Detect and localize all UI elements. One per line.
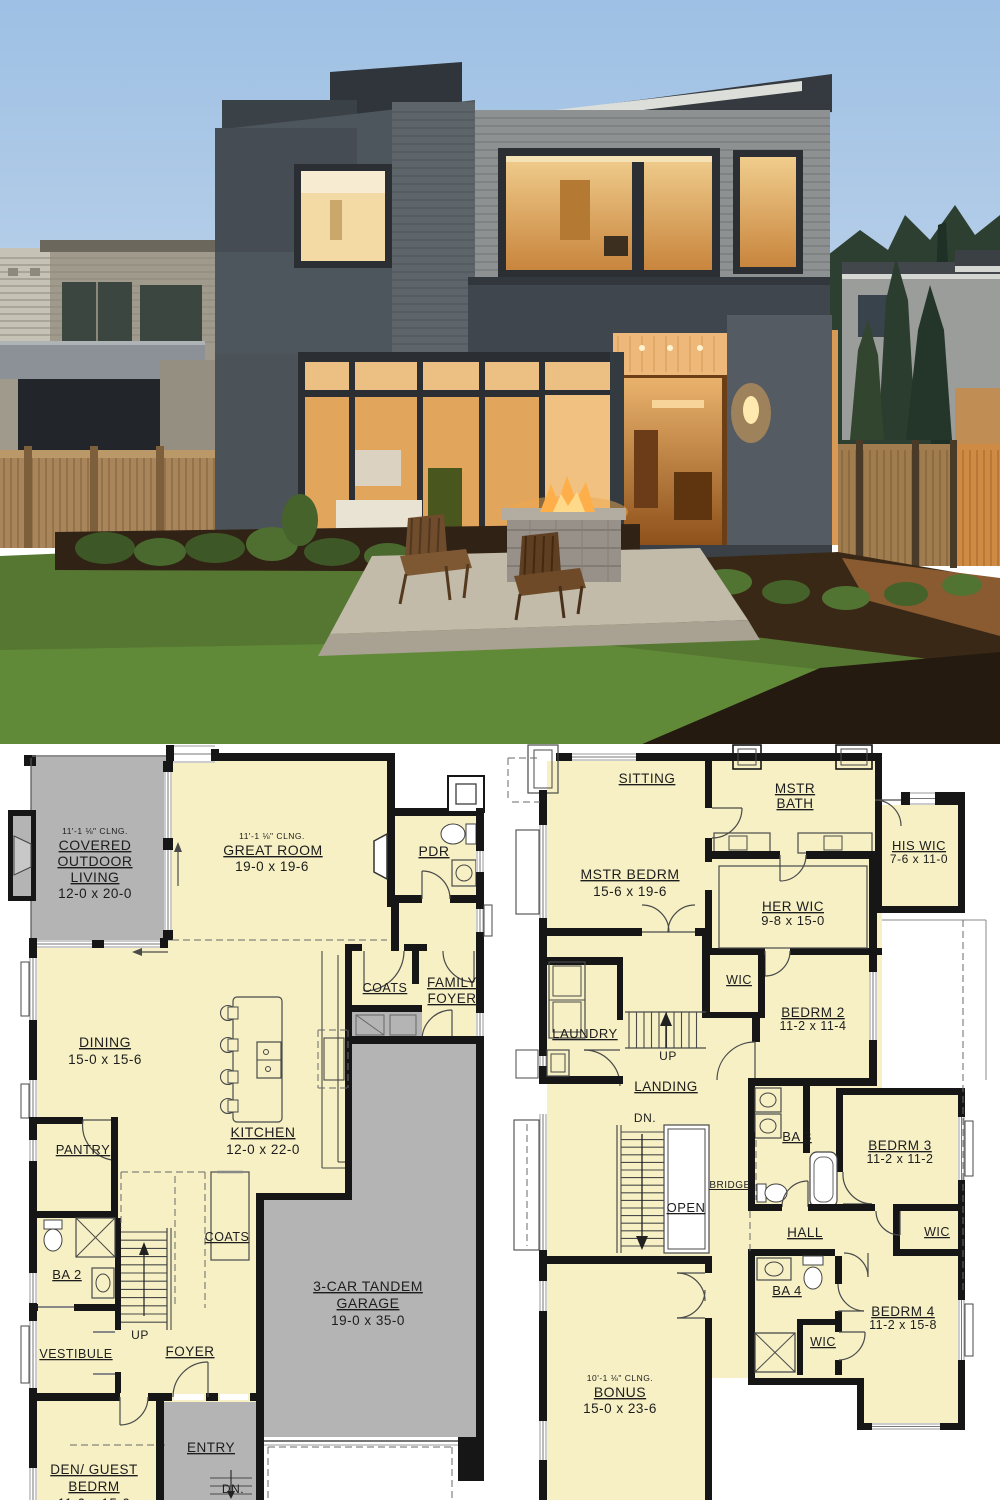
svg-text:11-2 x 15-8: 11-2 x 15-8 [869,1318,937,1332]
svg-text:BA 3: BA 3 [782,1129,811,1144]
svg-text:BA 2: BA 2 [52,1267,81,1282]
svg-text:9-8 x 15-0: 9-8 x 15-0 [761,913,825,928]
svg-text:15-0 x 15-6: 15-0 x 15-6 [68,1052,142,1067]
svg-text:COATS: COATS [205,1230,250,1244]
svg-text:OPEN: OPEN [667,1200,706,1215]
svg-text:7-6 x 11-0: 7-6 x 11-0 [890,852,948,866]
svg-text:PANTRY: PANTRY [56,1142,111,1157]
svg-text:PDR: PDR [418,843,449,859]
svg-text:COVERED: COVERED [59,837,132,853]
svg-text:BEDRM 4: BEDRM 4 [871,1304,935,1319]
svg-text:12-0 x 20-0: 12-0 x 20-0 [58,886,132,901]
svg-text:HIS WIC: HIS WIC [892,838,946,853]
svg-text:12-0 x 22-0: 12-0 x 22-0 [226,1142,300,1157]
svg-text:11'-1 ⅛" CLNG.: 11'-1 ⅛" CLNG. [62,826,128,836]
svg-text:DEN/ GUEST: DEN/ GUEST [50,1462,138,1477]
svg-text:11-2 x 11-2: 11-2 x 11-2 [867,1152,934,1166]
svg-text:MSTR: MSTR [775,781,815,796]
svg-text:MSTR BEDRM: MSTR BEDRM [580,866,679,882]
svg-text:15-6 x 19-6: 15-6 x 19-6 [593,884,667,899]
svg-text:COATS: COATS [363,981,408,995]
svg-text:GARAGE: GARAGE [337,1295,400,1311]
svg-text:3-CAR TANDEM: 3-CAR TANDEM [313,1278,423,1294]
svg-text:BEDRM: BEDRM [68,1479,119,1494]
svg-text:OUTDOOR: OUTDOOR [57,853,132,869]
svg-text:UP: UP [131,1328,149,1342]
svg-text:WIC: WIC [726,973,752,987]
svg-text:DN.: DN. [222,1482,244,1496]
svg-text:WIC: WIC [924,1225,950,1239]
svg-text:FOYER: FOYER [427,991,476,1006]
svg-text:19-0 x 19-6: 19-0 x 19-6 [235,859,309,874]
svg-text:KITCHEN: KITCHEN [231,1124,296,1140]
svg-text:LANDING: LANDING [634,1079,698,1094]
svg-text:10'-1 ⅛" CLNG.: 10'-1 ⅛" CLNG. [587,1373,653,1383]
svg-text:BEDRM 2: BEDRM 2 [781,1005,845,1020]
svg-text:WIC: WIC [810,1335,836,1349]
svg-text:BONUS: BONUS [594,1384,646,1400]
svg-text:HALL: HALL [787,1225,823,1240]
svg-text:VESTIBULE: VESTIBULE [39,1347,112,1361]
svg-text:BRIDGE: BRIDGE [709,1180,750,1191]
svg-text:FOYER: FOYER [165,1344,214,1359]
svg-text:DN.: DN. [634,1111,656,1125]
svg-text:11'-1 ⅛" CLNG.: 11'-1 ⅛" CLNG. [239,831,305,841]
svg-text:DINING: DINING [79,1034,131,1050]
svg-text:BA 4: BA 4 [772,1283,801,1298]
svg-text:19-0 x 35-0: 19-0 x 35-0 [331,1313,405,1328]
svg-text:11-2 x 11-4: 11-2 x 11-4 [780,1019,847,1033]
svg-text:11-0 x 15-0: 11-0 x 15-0 [58,1496,131,1500]
svg-text:LIVING: LIVING [71,869,120,885]
svg-text:FAMILY: FAMILY [427,975,477,990]
svg-text:HER WIC: HER WIC [762,899,824,914]
svg-text:ENTRY: ENTRY [187,1440,235,1455]
svg-text:UP: UP [659,1049,677,1063]
svg-text:SITTING: SITTING [619,771,676,786]
svg-text:GREAT ROOM: GREAT ROOM [223,842,322,858]
svg-text:15-0 x 23-6: 15-0 x 23-6 [583,1401,657,1416]
svg-text:BATH: BATH [776,796,813,811]
svg-text:BEDRM 3: BEDRM 3 [868,1138,932,1153]
svg-text:LAUNDRY: LAUNDRY [552,1026,617,1041]
